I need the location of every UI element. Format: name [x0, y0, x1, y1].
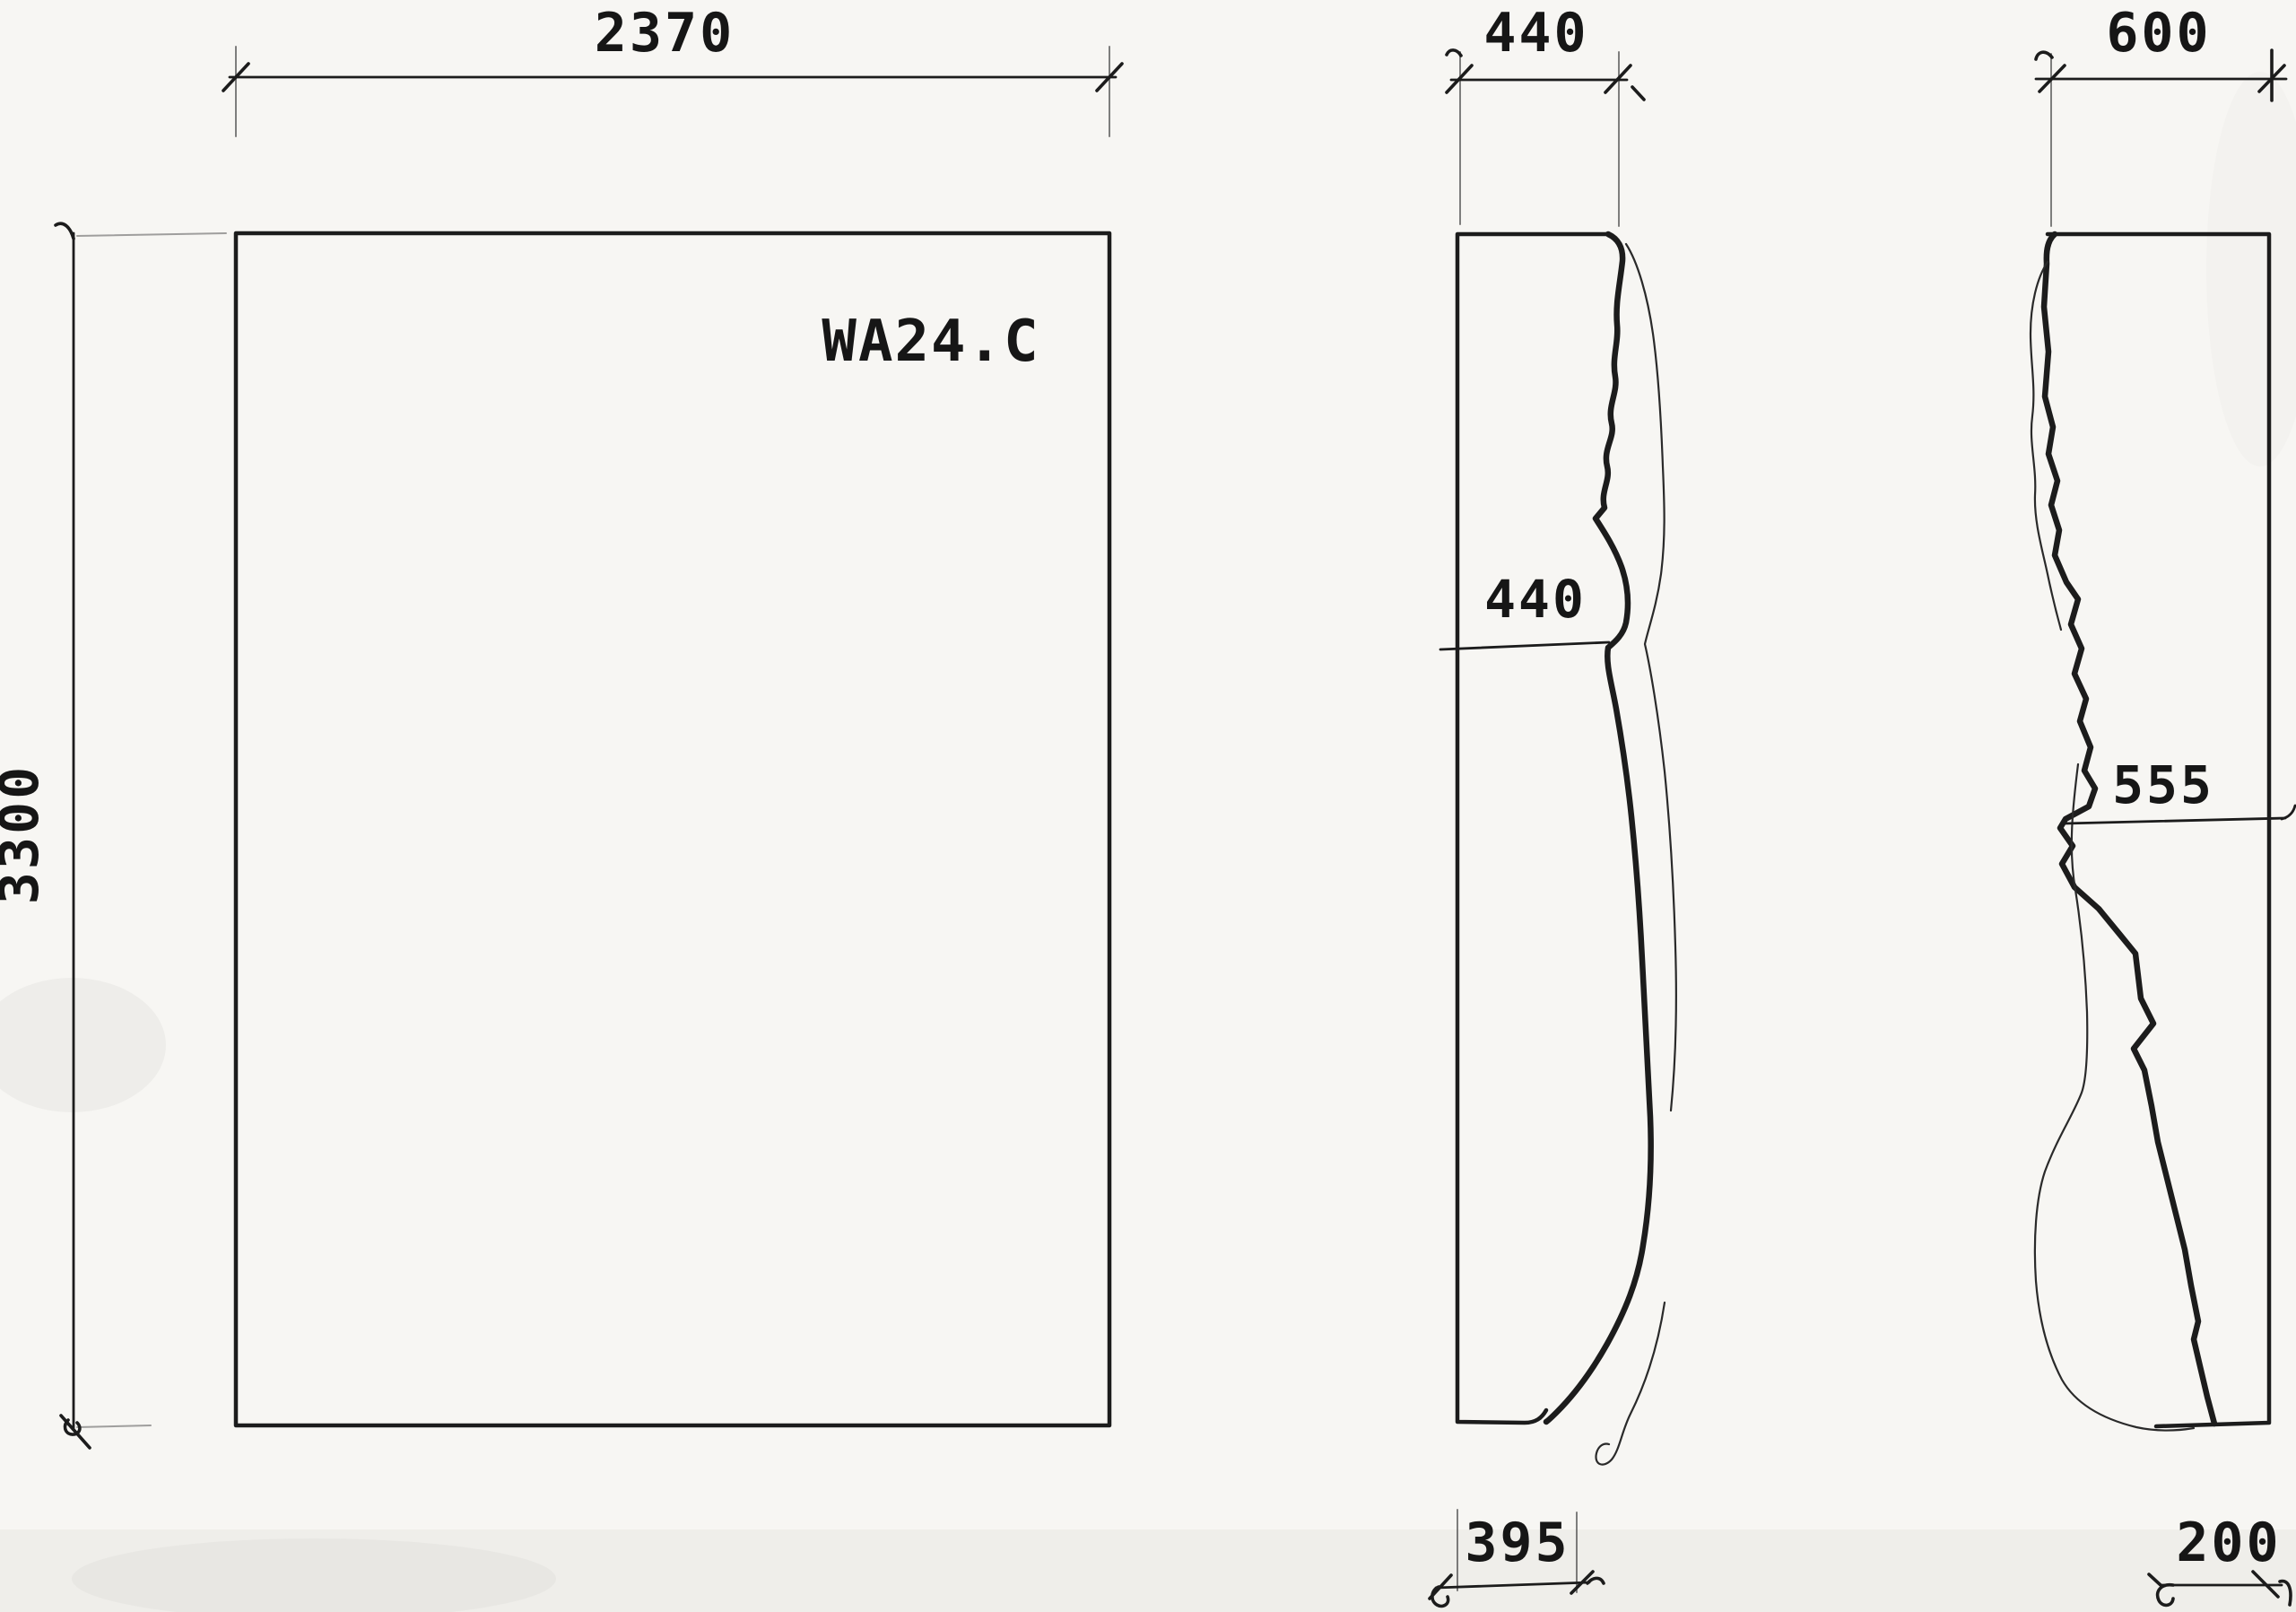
front-view-outline: [236, 233, 1109, 1425]
middle-inner-dim-value: 440: [1484, 569, 1587, 630]
middle-profile-back-contour: [1626, 244, 1676, 1111]
middle-inner-dim-line: [1440, 642, 1609, 649]
middle-profile-view: 440: [1440, 234, 1676, 1465]
dim-hook: [1447, 50, 1461, 56]
middle-profile-outline: [1457, 234, 1608, 1423]
part-label: WA24.C: [822, 309, 1039, 375]
dim-extension-line: [77, 1425, 151, 1427]
dim-right-bottom-value: 200: [2176, 1512, 2281, 1574]
drawing-canvas: WA24.C 2370 3300 440 440: [0, 0, 2296, 1612]
middle-profile-foot-contour: [1596, 1303, 1665, 1465]
right-inner-dim-line: [2065, 818, 2285, 823]
dim-tick: [1632, 87, 1644, 100]
paper-texture: [0, 72, 2296, 1612]
dim-hook: [2036, 52, 2052, 59]
right-inner-dim-value: 555: [2112, 754, 2214, 815]
dim-middle-bottom-value: 395: [1465, 1512, 1570, 1574]
dim-middle-top: 440: [1447, 2, 1644, 226]
right-profile-outer-contour-foot: [2035, 764, 2194, 1431]
dim-extension-line: [77, 233, 226, 236]
right-profile-crack-edge: [2044, 234, 2214, 1424]
dim-front-width-value: 2370: [595, 2, 735, 65]
middle-profile-natural-edge: [1546, 234, 1651, 1422]
dim-front-height-value: 3300: [0, 764, 51, 905]
dim-front-width: 2370: [223, 2, 1122, 136]
dim-right-top-value: 600: [2106, 2, 2211, 65]
dim-front-height: 3300: [0, 223, 226, 1448]
scanned-technical-drawing: WA24.C 2370 3300 440 440: [0, 0, 2296, 1612]
dim-hook: [56, 223, 74, 239]
dim-middle-top-value: 440: [1483, 2, 1588, 65]
front-view: WA24.C: [236, 233, 1109, 1425]
